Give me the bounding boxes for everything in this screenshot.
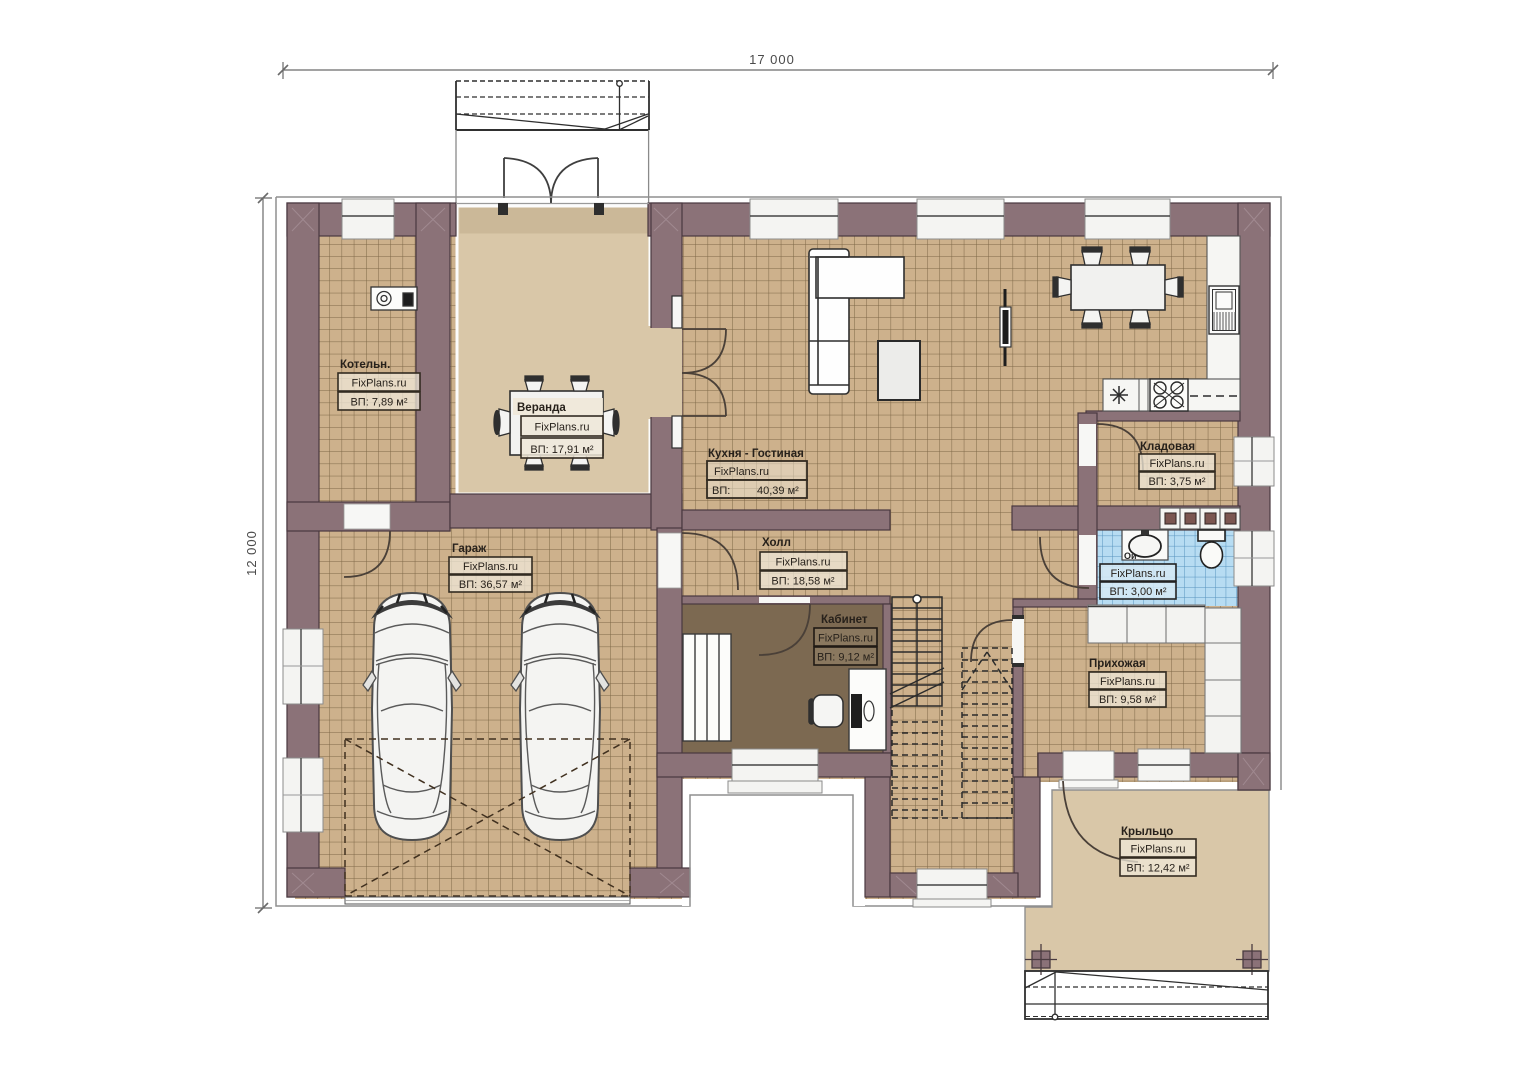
svg-text:Ои: Ои (1124, 551, 1137, 561)
svg-text:Веранда: Веранда (517, 402, 566, 414)
svg-text:ВП: 3,00 м²: ВП: 3,00 м² (1109, 586, 1166, 598)
svg-text:Крыльцо: Крыльцо (1121, 826, 1173, 838)
svg-text:40,39 м²: 40,39 м² (757, 485, 799, 497)
svg-text:Котельн.: Котельн. (340, 359, 390, 371)
svg-text:ВП: 3,75 м²: ВП: 3,75 м² (1148, 476, 1205, 488)
svg-text:ВП:: ВП: (712, 485, 730, 497)
svg-text:17 000: 17 000 (749, 52, 795, 67)
svg-text:ВП: 36,57 м²: ВП: 36,57 м² (459, 579, 523, 591)
svg-text:ВП: 9,12 м²: ВП: 9,12 м² (817, 652, 874, 664)
svg-text:FixPlans.ru: FixPlans.ru (1100, 676, 1155, 688)
svg-text:FixPlans.ru: FixPlans.ru (1130, 844, 1185, 856)
svg-text:ВП: 7,89 м²: ВП: 7,89 м² (350, 397, 407, 409)
svg-text:Кухня - Гостиная: Кухня - Гостиная (708, 448, 804, 460)
svg-text:ВП: 9,58 м²: ВП: 9,58 м² (1099, 694, 1156, 706)
svg-text:FixPlans.ru: FixPlans.ru (463, 561, 518, 573)
svg-text:Прихожая: Прихожая (1089, 658, 1146, 670)
svg-text:Холл: Холл (762, 537, 791, 549)
svg-text:FixPlans.ru: FixPlans.ru (775, 557, 830, 569)
svg-text:ВП: 17,91 м²: ВП: 17,91 м² (530, 444, 594, 456)
svg-text:12 000: 12 000 (244, 530, 259, 576)
svg-text:Гараж: Гараж (452, 543, 487, 555)
svg-text:ВП: 18,58 м²: ВП: 18,58 м² (771, 576, 835, 588)
svg-text:FixPlans.ru: FixPlans.ru (1110, 568, 1165, 580)
svg-text:FixPlans.ru: FixPlans.ru (351, 378, 406, 390)
svg-text:FixPlans.ru: FixPlans.ru (714, 466, 769, 478)
svg-text:Кабинет: Кабинет (821, 614, 868, 626)
svg-text:FixPlans.ru: FixPlans.ru (534, 422, 589, 434)
svg-text:Кладовая: Кладовая (1140, 441, 1195, 453)
svg-text:FixPlans.ru: FixPlans.ru (818, 633, 873, 645)
svg-text:ВП: 12,42 м²: ВП: 12,42 м² (1126, 863, 1190, 875)
svg-text:FixPlans.ru: FixPlans.ru (1149, 458, 1204, 470)
